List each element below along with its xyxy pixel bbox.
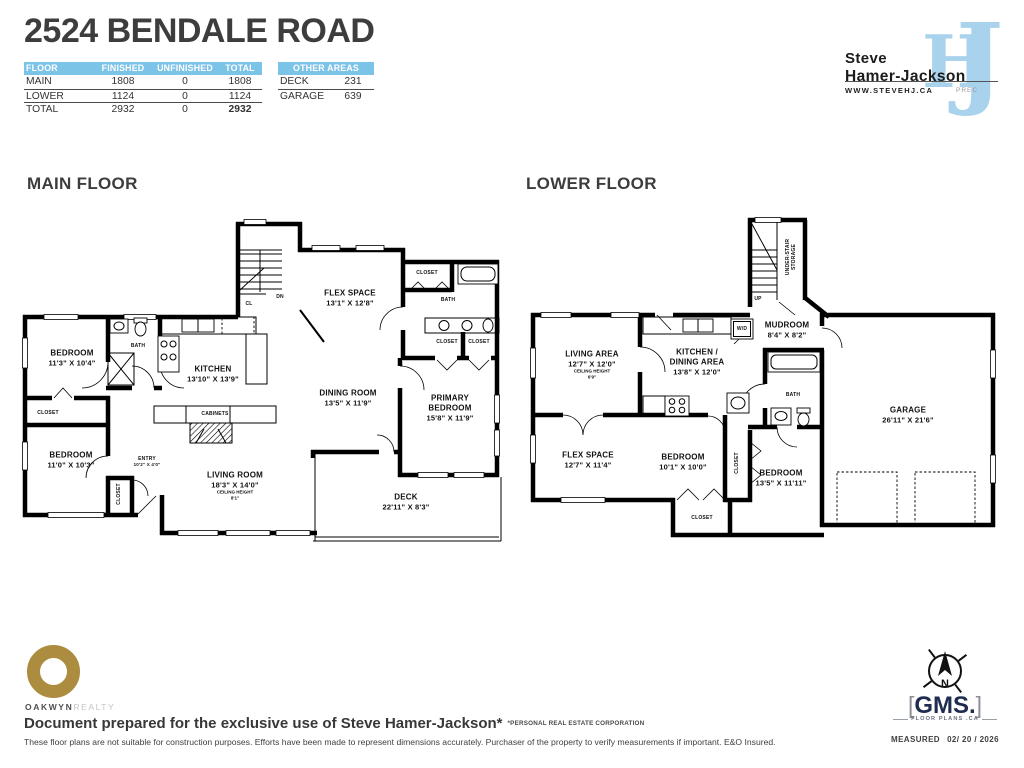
oakwyn-word1: OAKWYN <box>25 702 73 712</box>
label-bath: BATH <box>786 392 800 398</box>
cell-unfinished: 0 <box>152 75 218 89</box>
agent-first-name: Steve <box>845 50 887 67</box>
label-bedroom-2: BEDROOM 11'0" X 10'3" <box>47 450 94 469</box>
label-closet-cl: CL <box>245 301 252 307</box>
label-bedroom-1: BEDROOM 10'1" X 10'0" <box>659 452 706 471</box>
agent-designation: PREC <box>956 87 978 94</box>
label-under-stair-storage: UNDER-STAIR STORAGE <box>785 239 798 275</box>
oakwyn-wordmark: OAKWYNREALTY <box>25 702 115 712</box>
measured-label: MEASURED <box>891 735 940 744</box>
monogram-j: J <box>956 10 1003 110</box>
cell-value: 231 <box>332 75 374 89</box>
lower-floor-plan: UNDER-STAIR STORAGE UP MUDROOM 8'4" X 8'… <box>525 210 1015 560</box>
label-flex-space: FLEX SPACE 13'1" X 12'8" <box>324 288 376 307</box>
main-floor-plan: BEDROOM 11'3" X 10'4" BATH KITCHEN 13'10… <box>20 210 510 560</box>
prepared-note: *PERSONAL REAL ESTATE CORPORATION <box>508 720 645 727</box>
label-closet-b: CLOSET <box>468 339 489 345</box>
label-mudroom: MUDROOM 8'4" X 8'2" <box>765 320 810 339</box>
gms-bracket-right: ] <box>976 692 982 718</box>
cell-value: 639 <box>332 90 374 104</box>
label-kitchen-dining: KITCHEN / DINING AREA 13'8" X 12'0" <box>670 347 725 376</box>
floor-plan-document: 2524 BENDALE ROAD FLOOR FINISHED UNFINIS… <box>0 0 1024 768</box>
label-stairs-up: UP <box>754 296 761 302</box>
lower-floor-drawing <box>525 210 1015 560</box>
table-row: TOTAL 2932 0 2932 <box>24 102 262 116</box>
label-washer-dryer: W/D <box>737 326 747 332</box>
main-floor-heading: MAIN FLOOR <box>27 174 138 194</box>
label-stairs-down: DN <box>276 294 284 300</box>
label-closet-top-right: CLOSET <box>416 270 437 276</box>
garage-doors <box>837 472 975 524</box>
floor-area-table: FLOOR FINISHED UNFINISHED TOTAL MAIN 180… <box>24 62 262 116</box>
label-dining-room: DINING ROOM 13'5" X 11'9" <box>319 388 376 407</box>
agent-last-name: Hamer-Jackson <box>845 68 966 86</box>
other-areas-header: OTHER AREAS <box>278 62 374 75</box>
label-flex-space: FLEX SPACE 12'7" X 11'4" <box>562 450 614 469</box>
cell-floor: MAIN <box>24 75 94 89</box>
measured-date: 02/ 20 / 2026 <box>947 735 999 744</box>
agent-logo: H J Steve Hamer-Jackson WWW.STEVEHJ.CA P… <box>838 8 1018 140</box>
cell-total: 1124 <box>218 90 262 104</box>
cell-floor: TOTAL <box>24 103 94 117</box>
label-garage: GARAGE 26'11" X 21'6" <box>882 405 933 424</box>
floor-table-header: FLOOR FINISHED UNFINISHED TOTAL <box>24 62 262 75</box>
col-unfinished: UNFINISHED <box>152 62 218 75</box>
stairs-lower <box>751 222 777 300</box>
prepared-line: Document prepared for the exclusive use … <box>24 715 644 732</box>
label-deck: DECK 22'11" X 8'3" <box>382 492 429 511</box>
label-primary-bedroom: PRIMARY BEDROOM 15'8" X 11'9" <box>426 393 473 422</box>
disclaimer-text: These floor plans are not suitable for c… <box>24 737 776 747</box>
agent-rule <box>845 81 998 82</box>
label-closet-a: CLOSET <box>436 339 457 345</box>
label-closet-mid: CLOSET <box>734 452 740 473</box>
cell-total: 1808 <box>218 75 262 89</box>
table-row: DECK 231 <box>278 75 374 89</box>
compass-icon: N <box>917 646 973 696</box>
cell-finished: 1808 <box>94 75 152 89</box>
page-title: 2524 BENDALE ROAD <box>24 12 374 51</box>
cell-finished: 1124 <box>94 90 152 104</box>
cell-floor: LOWER <box>24 90 94 104</box>
oakwyn-logo-icon <box>27 645 80 698</box>
col-total: TOTAL <box>218 62 262 75</box>
table-row: MAIN 1808 0 1808 <box>24 75 262 89</box>
prepared-text: Document prepared for the exclusive use … <box>24 715 503 732</box>
measured-line: MEASURED 02/ 20 / 2026 <box>891 735 999 744</box>
gms-wordmark: [GMS.] <box>893 694 997 718</box>
cell-name: GARAGE <box>278 90 332 104</box>
oakwyn-word2: REALTY <box>73 702 115 712</box>
cell-unfinished: 0 <box>152 90 218 104</box>
gms-name-text: GMS. <box>914 692 975 719</box>
label-bath-2: BATH <box>441 297 455 303</box>
label-kitchen: KITCHEN 13'10" X 13'9" <box>187 364 239 383</box>
label-living-area: LIVING AREA 12'7" X 12'0" CEILING HEIGHT… <box>565 349 618 380</box>
agent-website: WWW.STEVEHJ.CA <box>845 86 933 95</box>
label-bedroom-1: BEDROOM 11'3" X 10'4" <box>48 348 95 367</box>
table-row: GARAGE 639 <box>278 89 374 103</box>
label-closet-left: CLOSET <box>37 410 58 416</box>
col-finished: FINISHED <box>94 62 152 75</box>
label-bath-1: BATH <box>131 343 145 349</box>
other-areas-table: OTHER AREAS DECK 231 GARAGE 639 <box>278 62 374 102</box>
gms-logo: [GMS.] FLOOR PLANS .CA <box>893 694 997 722</box>
label-closet-bottom: CLOSET <box>691 515 712 521</box>
cell-finished: 2932 <box>94 103 152 117</box>
main-floor-drawing <box>20 210 510 560</box>
cell-unfinished: 0 <box>152 103 218 117</box>
label-bedroom-2: BEDROOM 13'5" X 11'11" <box>755 468 806 487</box>
col-floor: FLOOR <box>24 62 94 75</box>
table-row: LOWER 1124 0 1124 <box>24 89 262 103</box>
label-cabinets: CABINETS <box>201 411 228 417</box>
label-entry: ENTRY 10'2" X 4'0" <box>134 456 161 468</box>
cell-total: 2932 <box>218 103 262 117</box>
lower-floor-heading: LOWER FLOOR <box>526 174 657 194</box>
bathroom-fixtures <box>768 352 820 426</box>
label-living-room: LIVING ROOM 18'3" X 14'0" CEILING HEIGHT… <box>207 470 263 501</box>
svg-text:N: N <box>941 678 949 690</box>
label-closet-vertical: CLOSET <box>116 483 122 504</box>
cell-name: DECK <box>278 75 332 89</box>
